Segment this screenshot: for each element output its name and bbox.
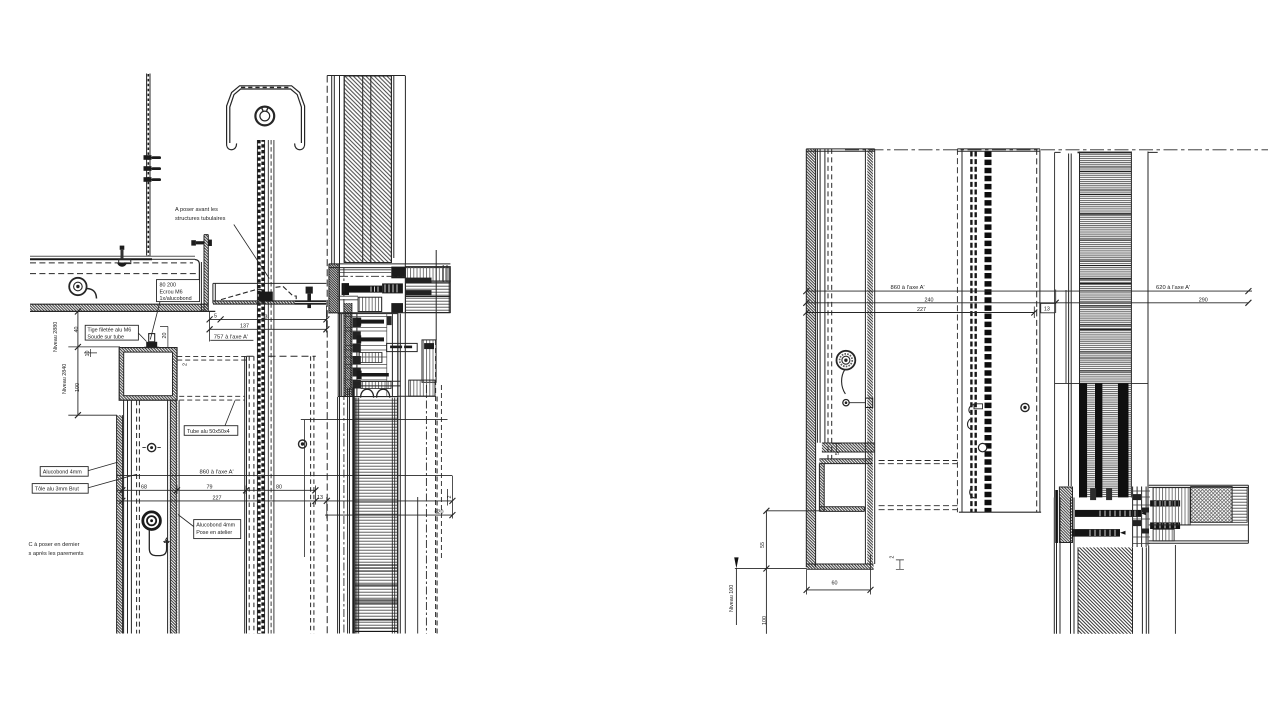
- svg-text:10: 10: [85, 351, 91, 357]
- svg-text:137: 137: [240, 324, 249, 330]
- svg-text:100: 100: [75, 383, 81, 392]
- svg-text:100: 100: [762, 616, 768, 625]
- svg-text:Tige filetée alu M6: Tige filetée alu M6: [87, 328, 131, 334]
- svg-text:5: 5: [835, 452, 841, 455]
- svg-text:79: 79: [207, 485, 213, 491]
- svg-text:860 à l'axe A': 860 à l'axe A': [200, 470, 234, 476]
- svg-text:13: 13: [262, 315, 268, 321]
- svg-text:80: 80: [276, 485, 282, 491]
- svg-text:68: 68: [141, 485, 147, 491]
- svg-text:620 à l'axe A': 620 à l'axe A': [1156, 285, 1190, 291]
- svg-text:Tube alu 50x50x4: Tube alu 50x50x4: [187, 429, 230, 435]
- svg-text:Pose en atelier: Pose en atelier: [196, 530, 232, 536]
- svg-text:Soude sur tube: Soude sur tube: [87, 334, 124, 340]
- svg-text:Niveau 2880: Niveau 2880: [53, 322, 59, 352]
- svg-text:2: 2: [890, 556, 896, 559]
- svg-text:227: 227: [917, 307, 926, 313]
- svg-text:C à poser en dernier: C à poser en dernier: [29, 542, 80, 548]
- svg-text:13: 13: [317, 495, 323, 501]
- svg-text:Alucobond 4mm: Alucobond 4mm: [196, 523, 235, 529]
- svg-text:2: 2: [447, 496, 453, 499]
- svg-text:s après les parements: s après les parements: [29, 551, 84, 557]
- svg-text:2: 2: [183, 363, 189, 366]
- svg-text:Niveau 100: Niveau 100: [729, 585, 735, 612]
- svg-text:20: 20: [162, 333, 168, 339]
- svg-text:55: 55: [760, 542, 766, 548]
- svg-text:80 200: 80 200: [160, 283, 177, 289]
- svg-text:227: 227: [213, 495, 222, 501]
- svg-text:5: 5: [214, 314, 217, 320]
- svg-text:240: 240: [925, 297, 934, 303]
- svg-text:860 à l'axe A': 860 à l'axe A': [891, 285, 925, 291]
- svg-text:757 à l'axe A': 757 à l'axe A': [214, 334, 248, 340]
- svg-text:290: 290: [1199, 297, 1208, 303]
- svg-text:Niveau 2840: Niveau 2840: [62, 364, 68, 394]
- svg-text:1x/alucobond: 1x/alucobond: [160, 296, 192, 302]
- svg-text:Tôle alu 3mm Brut: Tôle alu 3mm Brut: [35, 487, 80, 493]
- svg-text:Ecrou M6: Ecrou M6: [160, 289, 183, 295]
- svg-text:40: 40: [74, 327, 80, 333]
- svg-text:structures tubulaires: structures tubulaires: [175, 216, 226, 222]
- svg-text:A poser avant les: A poser avant les: [175, 207, 218, 213]
- svg-text:620: 620: [435, 509, 444, 515]
- svg-text:13: 13: [1044, 307, 1050, 313]
- svg-text:60: 60: [832, 581, 838, 587]
- svg-text:Alucobond 4mm: Alucobond 4mm: [43, 470, 82, 476]
